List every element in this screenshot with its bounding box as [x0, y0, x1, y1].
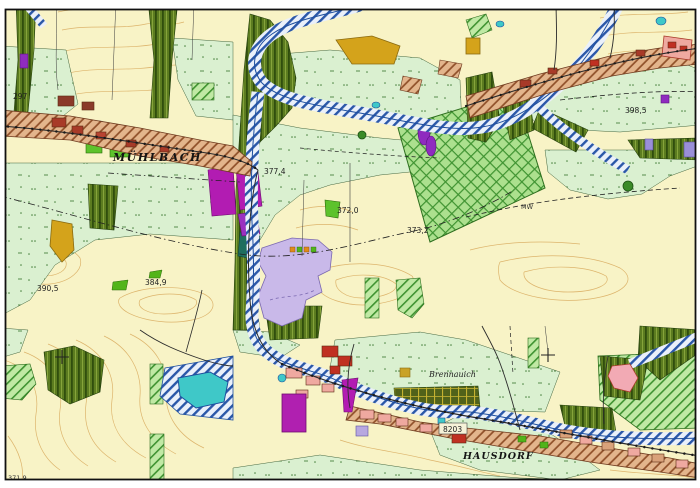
label-elevation-297: 297: [13, 92, 28, 101]
map-sheet: 297MÜHLBACH377,4372,0373,2398,5390,5384,…: [0, 0, 700, 488]
building: [676, 460, 688, 468]
lavender-building: [356, 426, 368, 436]
label-elevation-371-9: 371,9: [8, 474, 27, 482]
green-hatch-patch: [150, 364, 163, 404]
label-place-hausdorf: HAUSDORF: [462, 451, 534, 462]
water-spot: [372, 102, 380, 108]
building: [330, 366, 340, 374]
map-canvas: 297MÜHLBACH377,4372,0373,2398,5390,5384,…: [0, 0, 700, 488]
ochre-patch: [466, 38, 480, 54]
building: [52, 118, 66, 127]
building: [322, 384, 334, 392]
ochre-patch: [400, 368, 410, 377]
marker-dot: [290, 247, 295, 252]
field-patch-darkred: [82, 102, 94, 110]
violet-patch: [645, 139, 653, 150]
purple-patch: [661, 95, 669, 103]
building: [668, 42, 676, 48]
building: [652, 454, 664, 462]
green-hatch-patch: [150, 434, 164, 480]
building: [72, 126, 83, 134]
magenta-patch: [208, 166, 236, 216]
map-layers: 297MÜHLBACH377,4372,0373,2398,5390,5384,…: [0, 0, 700, 488]
label-road-8203: 8203: [443, 425, 462, 434]
bright-green-patch: [540, 442, 548, 448]
purple-patch: [20, 54, 28, 68]
building: [360, 410, 374, 419]
label-elevation-398-5: 398,5: [625, 106, 647, 115]
building: [636, 50, 645, 56]
marker-dot: [297, 247, 302, 252]
water-spot: [496, 21, 504, 27]
label-elevation-384-9: 384,9: [145, 278, 167, 287]
water-spot: [656, 17, 666, 25]
purple-blob: [426, 136, 436, 156]
building: [322, 346, 338, 357]
green-hatch-patch: [365, 278, 379, 318]
tree-symbol: [358, 131, 366, 139]
marker-dot: [311, 247, 316, 252]
building: [378, 414, 391, 422]
building: [628, 448, 640, 456]
water-spot: [278, 374, 286, 382]
purple-area: [282, 394, 306, 432]
label-place-muehlbach: MÜHLBACH: [112, 150, 202, 164]
building: [548, 68, 557, 74]
field-patch-darkred: [58, 96, 74, 106]
tree-symbol: [623, 181, 633, 191]
marker-dot: [304, 247, 309, 252]
building: [452, 434, 466, 443]
label-elevation-390-5: 390,5: [37, 284, 59, 293]
building: [602, 442, 614, 450]
building: [590, 60, 599, 66]
label-field-brennauich: Brennauich: [428, 370, 476, 379]
building: [396, 418, 408, 426]
label-elevation-373-2: 373,2: [407, 226, 429, 235]
building-block-salmon: [662, 36, 692, 60]
violet-patch: [684, 142, 696, 157]
green-hatch-patch: [192, 83, 214, 100]
bright-green-patch: [518, 436, 526, 442]
label-elevation-377-4: 377,4: [264, 167, 286, 176]
building: [420, 424, 432, 432]
label-elevation-372-0: 372,0: [337, 206, 359, 215]
meadow-region: [0, 46, 78, 120]
green-hatch-patch: [528, 338, 539, 368]
label-path-mw: MW: [521, 203, 534, 211]
